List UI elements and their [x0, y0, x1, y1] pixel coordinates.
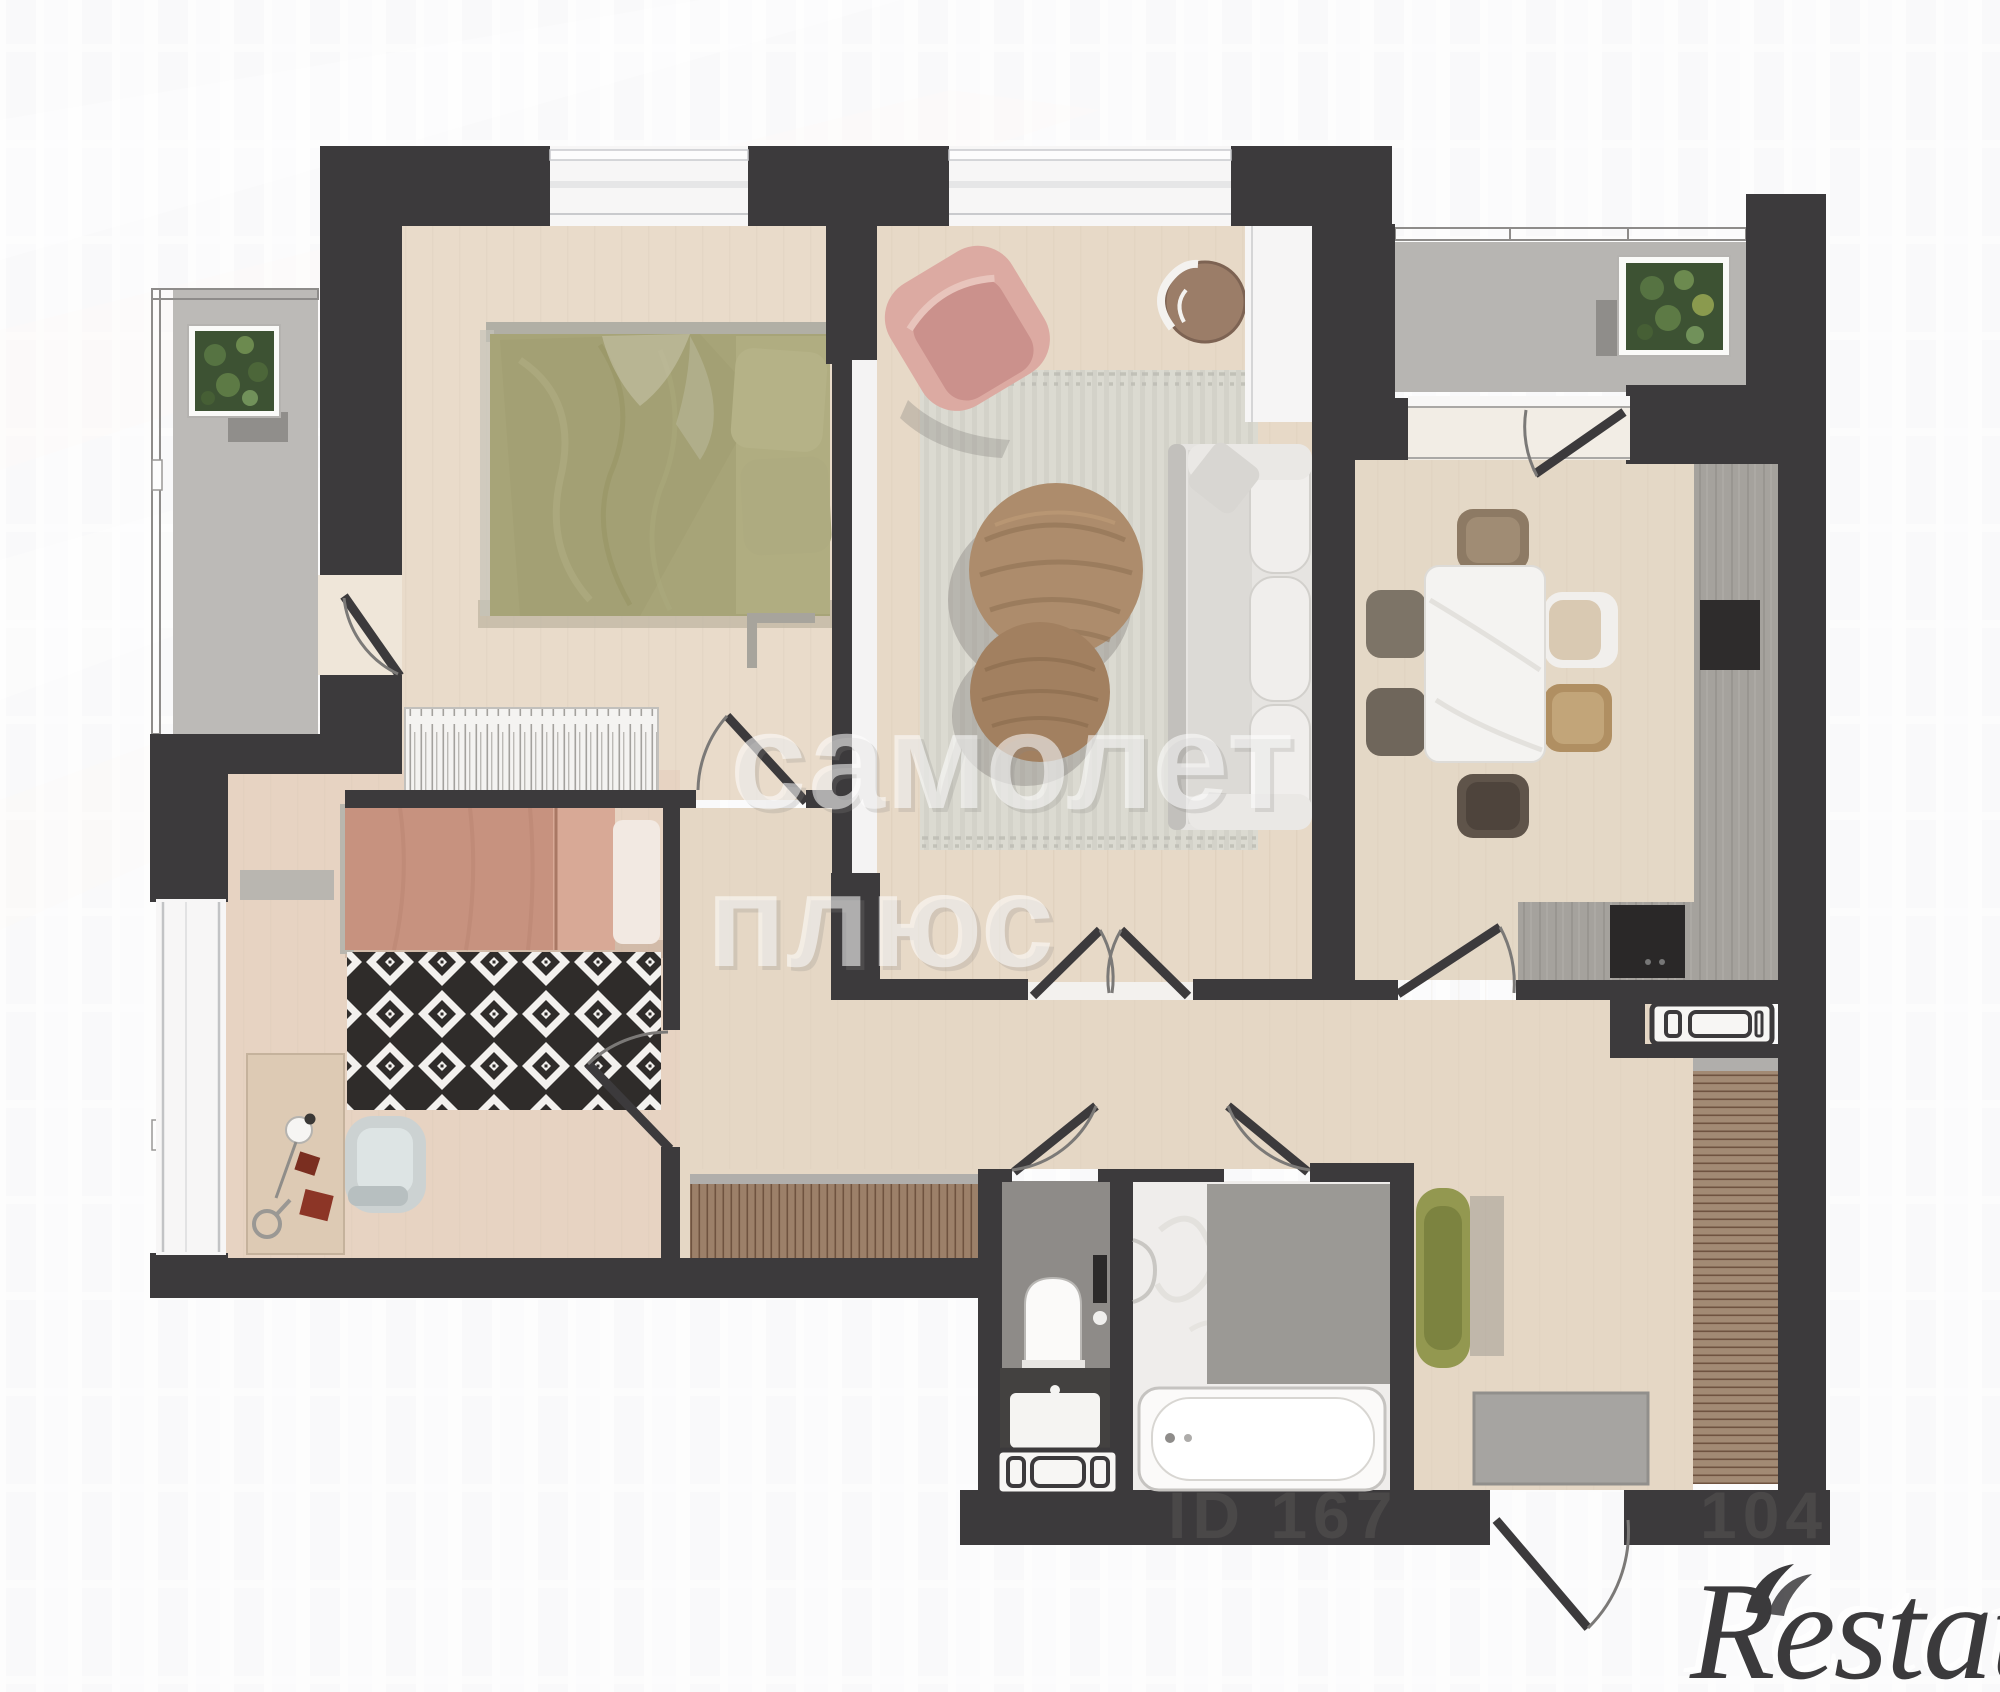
- svg-text:104: 104: [1700, 1478, 1828, 1552]
- svg-text:Restate: Restate: [1689, 1554, 2000, 1692]
- svg-text:самолет: самолет: [730, 684, 1295, 838]
- svg-text:ID 167: ID 167: [1168, 1478, 1398, 1552]
- svg-text:плюс: плюс: [706, 847, 1054, 994]
